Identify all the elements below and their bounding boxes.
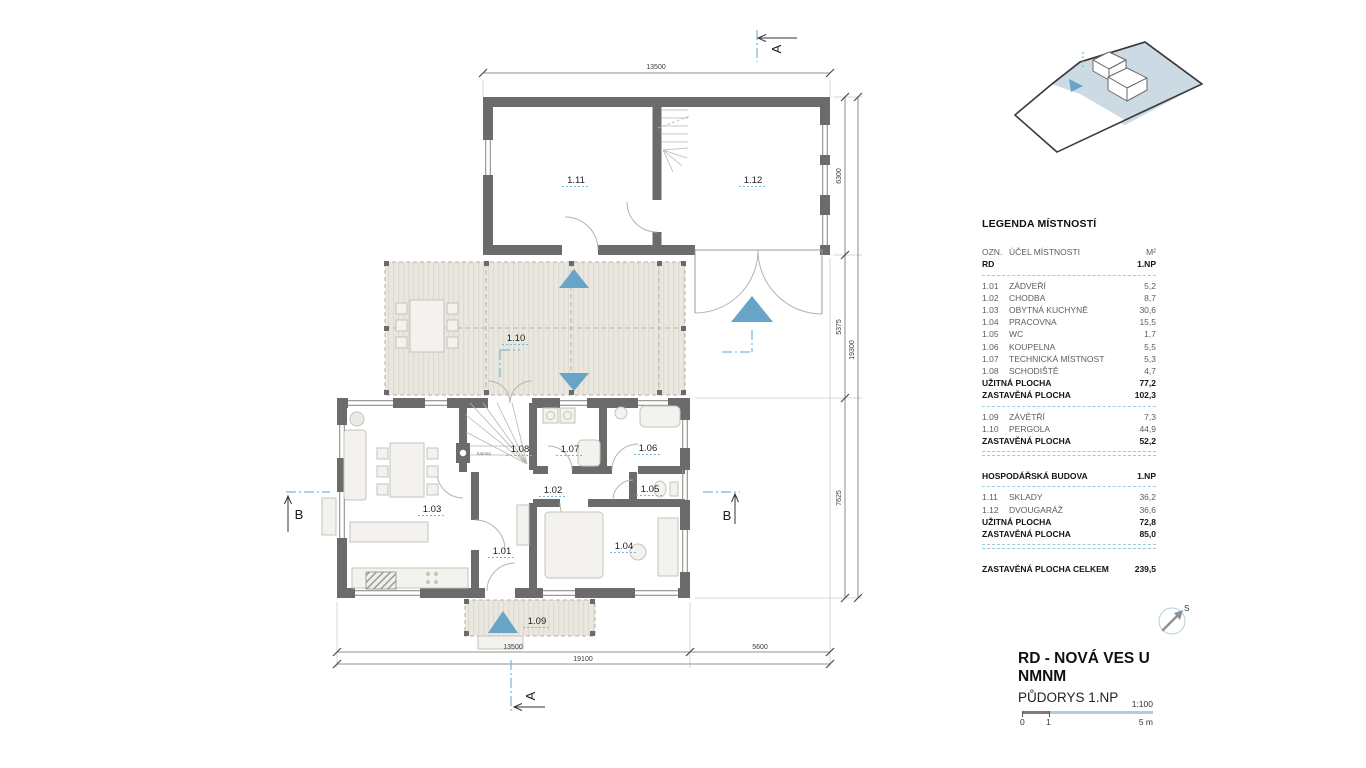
legend-title: LEGENDA MÍSTNOSTÍ (982, 218, 1156, 230)
legend-row: 1.12DVOUGARÁŽ36,6 (982, 504, 1156, 516)
dim-right-middle: 5375 (836, 319, 843, 335)
room-label-1-06: 1.06 (639, 443, 658, 454)
legend-header: OZN. ÚČEL MÍSTNOSTI M² (982, 246, 1156, 258)
scale-label-1: 1 (1046, 717, 1051, 727)
room-label-1-10: 1.10 (507, 333, 526, 344)
legend-row: 1.03OBYTNÁ KUCHYNĚ30,6 (982, 304, 1156, 316)
room-label-1-05: 1.05 (641, 484, 660, 495)
dim-bottom-house: 13500 (503, 644, 523, 651)
legend-divider-double (982, 451, 1156, 456)
legend-group-outbuilding: HOSPODÁŘSKÁ BUDOVA 1.NP (982, 470, 1156, 482)
pergola-deck (384, 261, 686, 395)
legend-divider-double (982, 544, 1156, 549)
legend-row: 1.01ZÁDVEŘÍ5,2 (982, 280, 1156, 292)
legend-group-rd: RD 1.NP (982, 258, 1156, 270)
garage-ref-line (722, 330, 752, 352)
section-label-b-right: B (723, 508, 732, 523)
room-label-1-03: 1.03 (423, 504, 442, 515)
room-label-1-11: 1.11 (567, 175, 585, 186)
room-label-1-02: 1.02 (544, 485, 563, 496)
legend-builtup-exterior: ZASTAVĚNÁ PLOCHA52,2 (982, 435, 1156, 447)
legend-row: 1.06KOUPELNA5,5 (982, 341, 1156, 353)
legend-row: 1.11SKLADY36,2 (982, 491, 1156, 503)
scale-label-5m: 5 m (1139, 717, 1153, 727)
legend-row: 1.09ZÁVĚTŘÍ7,3 (982, 411, 1156, 423)
dim-bottom-gap: 5600 (752, 644, 768, 651)
house-doors (437, 381, 638, 591)
room-legend: LEGENDA MÍSTNOSTÍ OZN. ÚČEL MÍSTNOSTI M²… (982, 218, 1156, 575)
scale-segment-dark (1022, 711, 1049, 714)
legend-divider (982, 406, 1156, 407)
room-label-1-08: 1.08 (511, 444, 530, 455)
legend-builtup-outbuilding: ZASTAVĚNÁ PLOCHA85,0 (982, 528, 1156, 540)
north-arrow: S (1159, 604, 1189, 634)
legend-row: 1.04PRACOVNA15,5 (982, 316, 1156, 328)
legend-row: 1.10PERGOLA44,9 (982, 423, 1156, 435)
room-label-1-07: 1.07 (561, 444, 580, 455)
legend-usable-rd: UŽITNÁ PLOCHA77,2 (982, 377, 1156, 389)
section-label-a-bottom: A (523, 691, 538, 700)
entry-arrow-garage (731, 296, 773, 322)
drawing-sheet: 1.11 1.12 1.10 1.08 1.07 1.06 1.02 1.05 … (0, 0, 1366, 768)
legend-col-area: M² (1146, 246, 1156, 258)
legend-col-name: ÚČEL MÍSTNOSTI (1009, 246, 1146, 258)
dim-right-total: 19300 (849, 340, 856, 360)
legend-divider (982, 486, 1156, 487)
legend-divider (982, 275, 1156, 276)
dim-top-width: 13500 (646, 64, 666, 71)
stove-label: kamna (477, 451, 491, 456)
room-label-1-09: 1.09 (528, 616, 547, 627)
scale-segment-blue (1049, 711, 1153, 714)
room-label-1-12: 1.12 (744, 175, 763, 186)
dim-bottom-total: 19100 (573, 656, 593, 663)
scale-ratio: 1:100 (1022, 699, 1153, 709)
dim-right-upper: 6300 (836, 168, 843, 184)
legend-total: ZASTAVĚNÁ PLOCHA CELKEM 239,5 (982, 563, 1156, 575)
legend-row: 1.07TECHNICKÁ MÍSTNOST5,3 (982, 353, 1156, 365)
garden-table (396, 300, 458, 352)
outbuilding-stair (658, 110, 690, 172)
legend-usable-outbuilding: UŽITNÁ PLOCHA72,8 (982, 516, 1156, 528)
scale-label-0: 0 (1020, 717, 1025, 727)
section-label-b-left: B (295, 507, 304, 522)
dim-right-lower: 7625 (836, 490, 843, 506)
legend-builtup-rd: ZASTAVĚNÁ PLOCHA102,3 (982, 389, 1156, 401)
legend-col-ozn: OZN. (982, 246, 1009, 258)
legend-row: 1.02CHODBA8,7 (982, 292, 1156, 304)
outbuilding-walls (483, 97, 830, 255)
room-label-1-04: 1.04 (615, 541, 634, 552)
site-plan-thumbnail (1015, 42, 1202, 152)
scale-bar: 1:100 0 1 5 m (1022, 699, 1153, 727)
legend-row: 1.05WC1,7 (982, 328, 1156, 340)
section-label-a-top: A (769, 44, 784, 53)
north-label: S (1184, 604, 1189, 613)
legend-row: 1.08SCHODIŠTĚ4,7 (982, 365, 1156, 377)
title-block: RD - NOVÁ VES U NMNM PŮDORYS 1.NP (1018, 650, 1198, 705)
room-label-1-01: 1.01 (493, 546, 512, 557)
fireplace (366, 572, 396, 589)
project-title: RD - NOVÁ VES U NMNM (1018, 650, 1198, 686)
